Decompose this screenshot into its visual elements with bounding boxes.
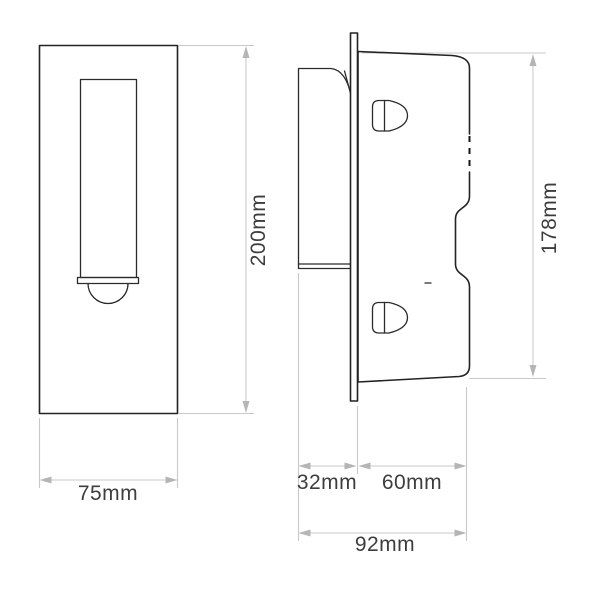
arrow-up-icon xyxy=(530,54,537,66)
arrow-left-icon xyxy=(299,530,311,537)
dimension-front-width-label: 75mm xyxy=(78,482,138,505)
arrow-down-icon xyxy=(243,401,250,413)
dimension-side-recess-label: 32mm xyxy=(297,471,357,494)
arrow-right-icon xyxy=(345,463,357,470)
dimension-lines xyxy=(40,46,537,537)
technical-drawing-canvas: 200mm 75mm 178mm 32mm 60mm 92mm xyxy=(0,0,600,600)
technical-drawing: 200mm 75mm 178mm 32mm 60mm 92mm xyxy=(0,0,600,600)
mounting-clip-top xyxy=(373,101,408,132)
arrow-down-icon xyxy=(530,365,537,377)
dimension-side-body-label: 60mm xyxy=(382,471,442,494)
recessed-housing-outline xyxy=(299,69,353,269)
dimension-side-height-label: 178mm xyxy=(538,182,561,255)
lamp-base-bar xyxy=(78,278,139,284)
arrow-left-icon xyxy=(299,463,311,470)
front-view xyxy=(40,46,178,414)
arrow-left-icon xyxy=(40,477,52,484)
dimension-front-height-label: 200mm xyxy=(247,194,270,267)
mounting-clip-bottom xyxy=(373,303,408,334)
arrow-right-icon xyxy=(455,463,467,470)
dimension-side-total-label: 92mm xyxy=(355,533,415,556)
dimension-labels: 200mm 75mm 178mm 32mm 60mm 92mm xyxy=(78,182,561,556)
front-faceplate-outline xyxy=(40,46,178,414)
side-view xyxy=(299,33,470,401)
arrow-left-icon xyxy=(359,463,371,470)
arrow-right-icon xyxy=(166,477,178,484)
lamp-slot xyxy=(81,80,137,278)
arrow-up-icon xyxy=(243,46,250,58)
arrow-right-icon xyxy=(455,530,467,537)
wall-plate xyxy=(351,33,358,401)
lamp-dome xyxy=(88,284,128,304)
